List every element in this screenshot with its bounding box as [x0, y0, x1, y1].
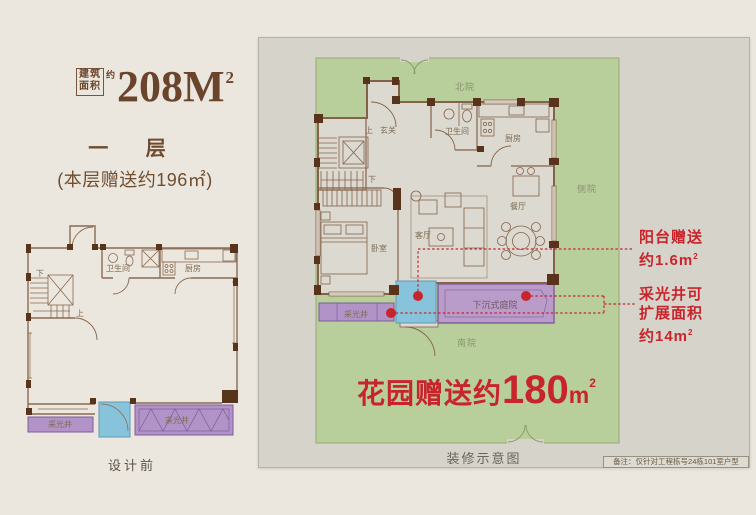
balcony-annotation-sup: 2	[693, 252, 698, 261]
lightwell-annotation-sup: 2	[688, 328, 693, 337]
left-plan-walls	[28, 226, 237, 415]
floor-gift-text: (本层赠送约196㎡)	[28, 166, 242, 192]
main-plan-panel: 北院 侧院 南院 上 玄关 卫生间 厨房 下 餐厅 客厅 卧室 采光井 下沉式庭…	[258, 37, 750, 468]
label-side-yard: 侧院	[577, 183, 597, 194]
label-left-up: 上	[76, 309, 84, 318]
left-plan-stairs	[30, 275, 73, 318]
left-plan-caption: 设计前	[57, 455, 207, 474]
label-lightwell: 采光井	[344, 309, 368, 319]
area-value-sup: 2	[226, 68, 235, 87]
floor-title: 一 层	[40, 132, 230, 161]
label-left-down: 下	[36, 269, 44, 278]
label-left-bathroom: 卫生间	[106, 263, 130, 273]
garden-gift-unit: m	[569, 382, 589, 408]
garden-gift-text: 花园赠送约	[357, 378, 502, 409]
lightwell-annotation: 采光井可 扩展面积 约14m2	[639, 285, 703, 346]
left-plan-windows	[28, 282, 237, 409]
plan-note: 备注：仅针对工程栋号24栋101室户型	[603, 456, 749, 468]
label-bath: 卫生间	[445, 126, 469, 136]
label-entry: 玄关	[380, 125, 396, 135]
lightwell-annotation-line3: 约14m	[639, 328, 688, 345]
area-box-row1: 建筑	[77, 69, 103, 81]
label-left-lightwell-b: 采光井	[165, 415, 189, 425]
label-dining: 餐厅	[510, 202, 526, 211]
garden-gift-value: 180	[502, 368, 569, 412]
label-north-yard: 北院	[455, 81, 475, 92]
area-box-row2: 面积	[77, 81, 103, 93]
area-title: 建筑 面积 约 208M2	[76, 58, 234, 107]
label-left-kitchen: 厨房	[185, 263, 201, 273]
label-sunken-courtyard: 下沉式庭院	[472, 299, 517, 310]
label-bedroom: 卧室	[371, 243, 387, 253]
lightwell-dot	[386, 308, 396, 318]
label-kitchen: 厨房	[505, 133, 521, 143]
balcony-annotation-line2: 约1.6m	[639, 252, 693, 269]
balcony-dot	[413, 291, 423, 301]
garden-gift-sup: 2	[589, 376, 596, 390]
balcony-annotation-line1: 阳台赠送	[639, 229, 703, 246]
plan-caption: 装修示意图	[419, 448, 549, 467]
area-title-box: 建筑 面积	[76, 68, 104, 96]
balcony-annotation: 阳台赠送 约1.6m2	[639, 228, 703, 270]
left-plan-wall-blocks	[26, 244, 238, 415]
label-living: 客厅	[415, 230, 431, 240]
label-left-lightwell-a: 采光井	[48, 419, 72, 429]
floorplan-page: { "title": { "box_row1": "建筑", "box_row2…	[0, 0, 756, 515]
area-value-number: 208M	[117, 62, 225, 111]
left-plan-doors	[72, 227, 191, 340]
left-floor-plan: 卫生间 厨房 下 上 采光井 采光井	[25, 218, 240, 453]
label-up: 上	[365, 126, 373, 135]
balcony-overlay	[396, 281, 436, 323]
area-value: 208M2	[117, 58, 234, 107]
lightwell-annotation-line1: 采光井可	[639, 286, 703, 303]
label-down: 下	[368, 175, 376, 184]
lightwell-annotation-line2: 扩展面积	[639, 305, 703, 322]
label-south-yard: 南院	[457, 337, 477, 348]
area-approx: 约	[106, 68, 115, 81]
garden-gift-label: 花园赠送约180m2	[357, 368, 596, 413]
courtyard-dot	[521, 291, 531, 301]
